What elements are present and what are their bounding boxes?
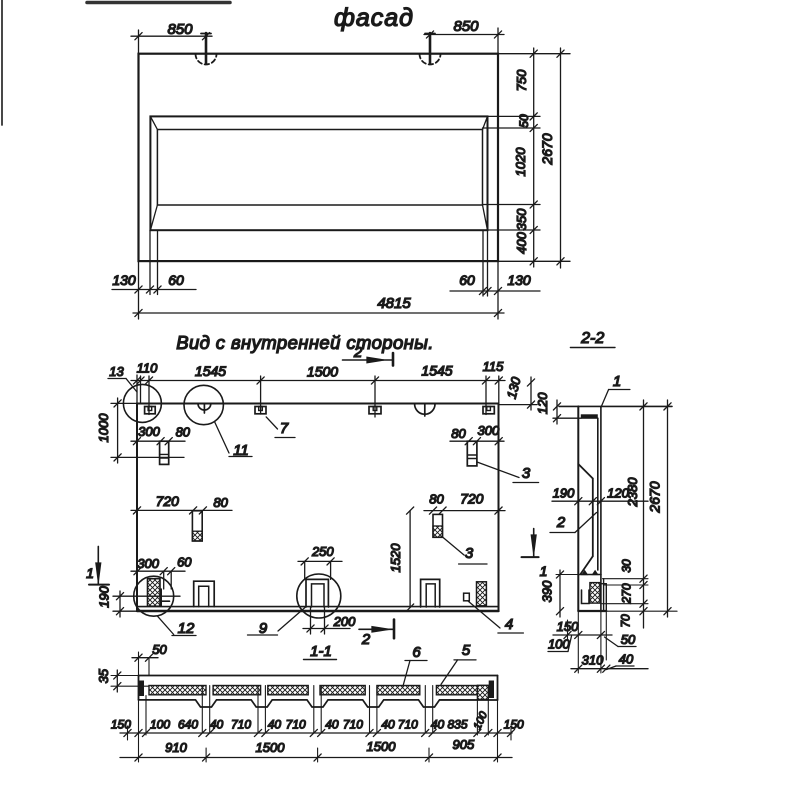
svg-text:Вид с внутренней стороны.: Вид с внутренней стороны.	[176, 332, 434, 353]
svg-text:720: 720	[460, 490, 484, 506]
svg-text:2-2: 2-2	[580, 330, 604, 347]
svg-text:2: 2	[353, 344, 363, 361]
svg-text:710: 710	[398, 718, 418, 732]
svg-text:70: 70	[619, 614, 633, 628]
svg-text:130: 130	[112, 272, 136, 288]
svg-text:115: 115	[483, 359, 504, 374]
svg-text:2670: 2670	[539, 133, 555, 165]
svg-text:50: 50	[621, 632, 636, 647]
svg-text:1: 1	[613, 373, 621, 390]
svg-text:150: 150	[557, 619, 579, 634]
svg-text:2: 2	[556, 514, 566, 531]
svg-text:850: 850	[453, 18, 479, 35]
svg-text:120: 120	[535, 392, 550, 414]
svg-text:2380: 2380	[625, 477, 640, 508]
svg-text:40: 40	[431, 718, 445, 732]
svg-text:1520: 1520	[388, 543, 403, 573]
svg-text:710: 710	[343, 718, 363, 732]
svg-text:710: 710	[231, 718, 251, 732]
svg-text:60: 60	[459, 272, 475, 288]
svg-text:100: 100	[150, 718, 170, 732]
svg-text:850: 850	[167, 21, 193, 38]
svg-text:4: 4	[505, 616, 513, 633]
svg-text:150: 150	[111, 718, 131, 732]
svg-text:40: 40	[381, 718, 395, 732]
svg-text:270: 270	[620, 583, 634, 604]
svg-text:835: 835	[447, 718, 467, 732]
svg-text:2: 2	[361, 631, 371, 648]
svg-text:3: 3	[465, 545, 474, 562]
svg-text:640: 640	[178, 718, 198, 732]
svg-text:910: 910	[165, 740, 187, 755]
svg-text:150: 150	[504, 718, 524, 732]
svg-text:12: 12	[178, 620, 195, 637]
svg-text:350: 350	[514, 208, 529, 230]
svg-text:1500: 1500	[307, 364, 338, 380]
svg-text:60: 60	[168, 272, 184, 288]
svg-text:1: 1	[86, 565, 94, 581]
svg-text:30: 30	[620, 559, 634, 573]
svg-text:1000: 1000	[96, 413, 111, 443]
svg-text:1500: 1500	[256, 740, 286, 755]
svg-text:40: 40	[210, 718, 224, 732]
svg-text:3: 3	[522, 465, 531, 482]
svg-text:13: 13	[109, 364, 124, 379]
svg-text:390: 390	[540, 580, 555, 602]
svg-text:80: 80	[451, 426, 466, 441]
svg-text:250: 250	[311, 544, 334, 559]
svg-text:750: 750	[514, 69, 529, 91]
svg-text:35: 35	[96, 668, 111, 683]
svg-text:60: 60	[177, 555, 192, 570]
svg-text:4815: 4815	[377, 295, 411, 312]
svg-text:50: 50	[152, 642, 167, 657]
svg-text:190: 190	[97, 585, 112, 607]
svg-text:710: 710	[286, 718, 306, 732]
svg-text:400: 400	[514, 231, 529, 253]
svg-text:40: 40	[619, 652, 634, 667]
svg-text:905: 905	[453, 737, 475, 752]
svg-text:1-1: 1-1	[310, 643, 332, 660]
svg-text:фасад: фасад	[334, 4, 414, 32]
svg-text:7: 7	[280, 420, 289, 437]
svg-text:130: 130	[507, 272, 531, 288]
svg-text:300: 300	[137, 556, 159, 571]
svg-text:1: 1	[540, 563, 548, 579]
svg-text:190: 190	[553, 486, 575, 501]
svg-text:100: 100	[548, 637, 570, 652]
svg-text:300: 300	[478, 423, 500, 438]
svg-text:6: 6	[412, 644, 421, 661]
svg-text:310: 310	[582, 653, 604, 668]
svg-text:2670: 2670	[647, 481, 663, 513]
svg-text:50: 50	[517, 114, 531, 128]
svg-text:1020: 1020	[513, 147, 528, 177]
svg-text:300: 300	[138, 424, 160, 439]
svg-text:5: 5	[462, 642, 471, 659]
svg-text:110: 110	[137, 361, 158, 376]
svg-text:1500: 1500	[367, 739, 397, 754]
svg-text:200: 200	[333, 614, 356, 629]
svg-text:80: 80	[176, 425, 191, 440]
svg-text:1545: 1545	[421, 363, 452, 379]
svg-text:80: 80	[213, 495, 228, 510]
svg-text:40: 40	[325, 718, 339, 732]
svg-text:720: 720	[156, 493, 180, 509]
svg-text:1545: 1545	[195, 363, 226, 379]
svg-text:80: 80	[429, 492, 444, 507]
svg-text:40: 40	[268, 718, 282, 732]
